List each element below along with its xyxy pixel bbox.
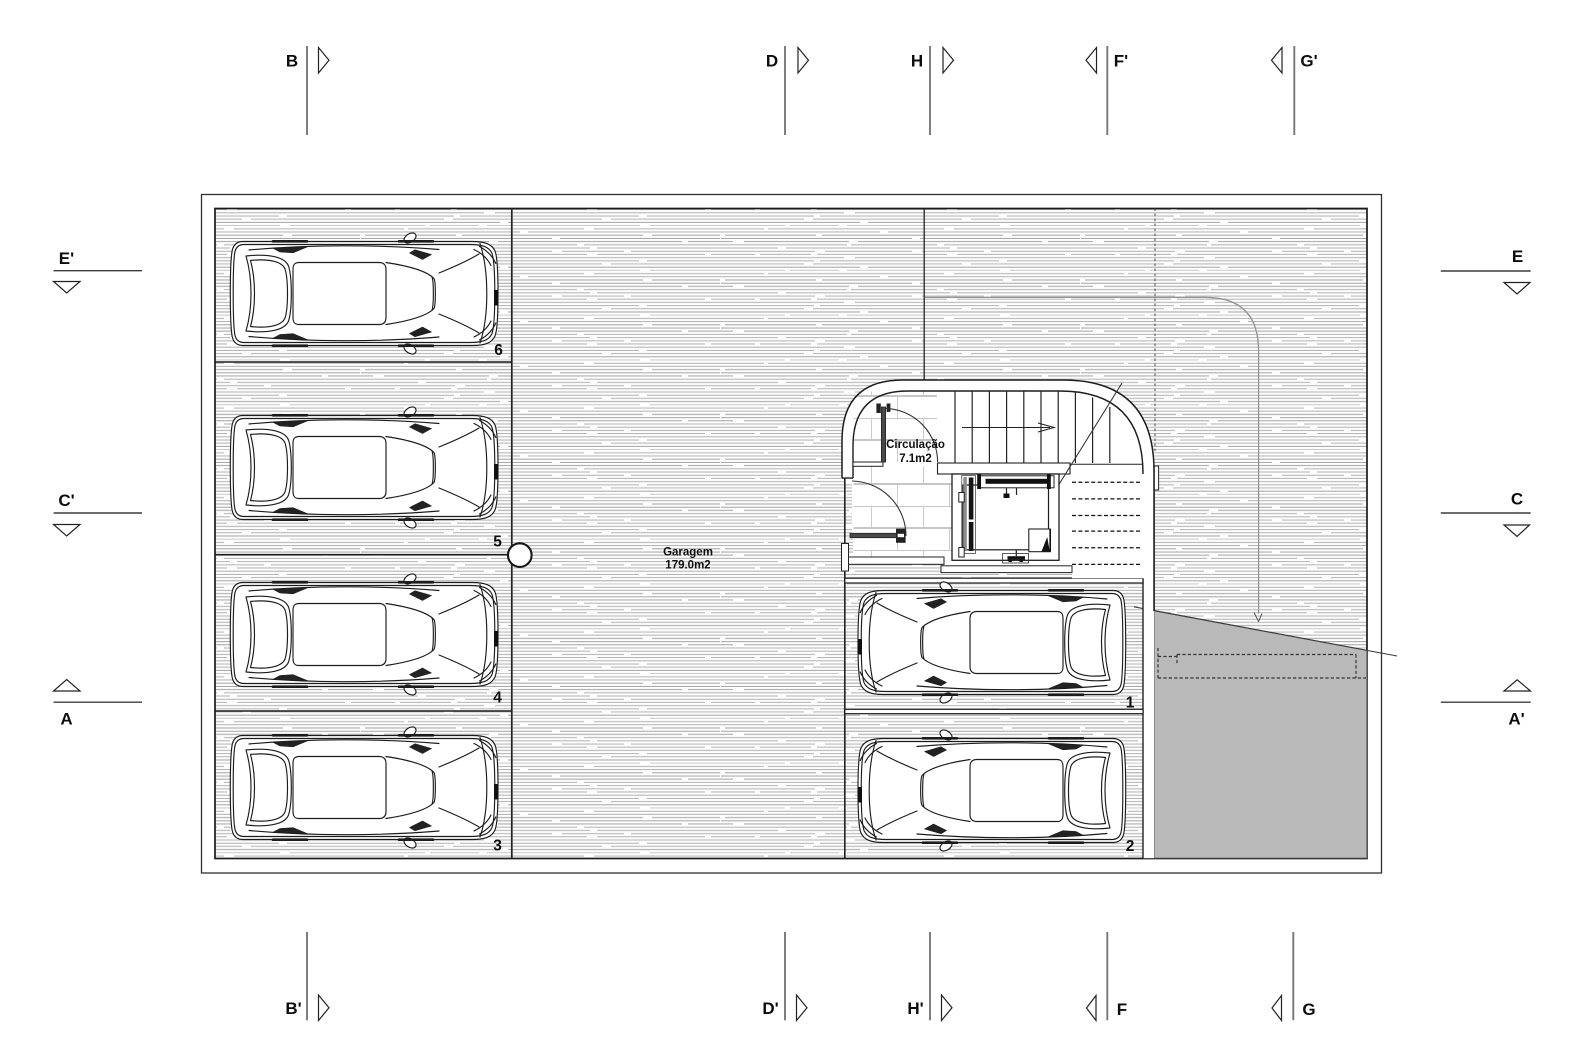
svg-text:3: 3: [493, 838, 502, 855]
svg-text:A': A': [1508, 710, 1524, 729]
svg-text:1: 1: [1126, 695, 1135, 712]
svg-text:E': E': [59, 249, 74, 268]
svg-text:5: 5: [493, 534, 502, 551]
svg-text:Garagem: Garagem: [663, 547, 713, 559]
svg-text:6: 6: [494, 342, 503, 359]
svg-text:D': D': [762, 999, 778, 1018]
svg-text:G: G: [1302, 1000, 1315, 1019]
svg-text:D: D: [766, 52, 778, 71]
svg-text:C': C': [58, 491, 74, 510]
svg-text:Circulação: Circulação: [886, 439, 945, 451]
svg-text:179.0m2: 179.0m2: [665, 560, 710, 572]
svg-text:2: 2: [1126, 838, 1135, 855]
svg-text:H: H: [911, 52, 923, 71]
svg-text:C: C: [1511, 490, 1523, 509]
svg-text:7.1m2: 7.1m2: [899, 453, 932, 465]
svg-text:4: 4: [493, 690, 502, 707]
svg-text:F: F: [1117, 1000, 1127, 1019]
svg-text:B: B: [286, 52, 298, 71]
svg-text:E: E: [1512, 247, 1523, 266]
svg-text:A: A: [60, 710, 72, 729]
svg-text:B': B': [285, 999, 301, 1018]
svg-text:F': F': [1114, 52, 1128, 71]
svg-text:G': G': [1300, 52, 1317, 71]
svg-text:H': H': [907, 999, 923, 1018]
